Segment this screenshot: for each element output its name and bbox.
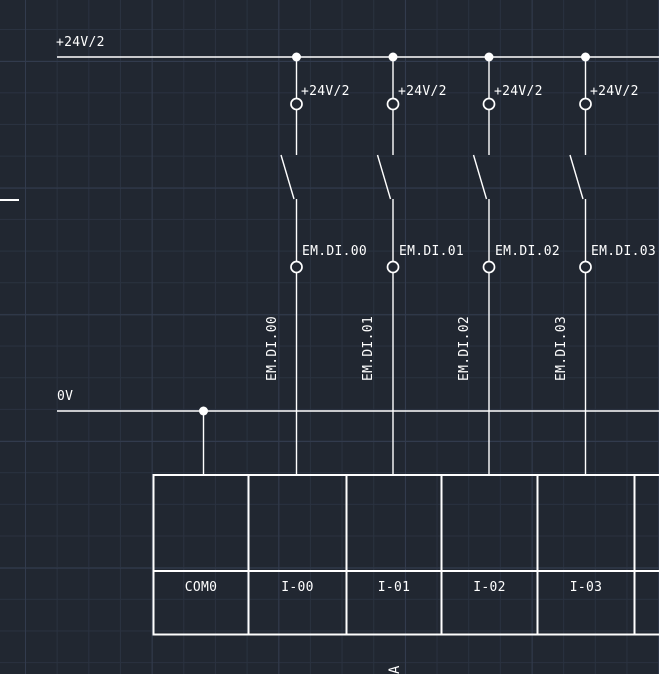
branch-2-supply-label: +24V/2 xyxy=(398,85,447,99)
branch-1-supply-label: +24V/2 xyxy=(301,85,350,99)
branch-1-wire-tag: EM.DI.00 xyxy=(266,315,280,381)
terminal-block-table xyxy=(153,474,659,636)
branch-2-junction-dot xyxy=(389,53,398,62)
branch-4-wire-tag: EM.DI.03 xyxy=(555,315,569,381)
branch-4-supply-label: +24V/2 xyxy=(590,85,639,99)
branch-4-input-label: EM.DI.03 xyxy=(591,245,656,259)
sheet-zone-marker: A xyxy=(388,659,403,674)
branch-3-input-label: EM.DI.02 xyxy=(495,245,560,259)
terminal-cell-i00: I-00 xyxy=(249,580,347,596)
branch-3-junction-dot xyxy=(485,53,494,62)
branch-1-supply-terminal-circle xyxy=(291,99,302,110)
branch-3-contact-switch-line xyxy=(474,155,487,199)
branch-4-contact-switch-line xyxy=(570,155,583,199)
ground-bus xyxy=(57,407,659,475)
ground-bus-label: 0V xyxy=(57,390,73,404)
branch-2-supply-terminal-circle xyxy=(388,99,399,110)
branch-1-junction-dot xyxy=(292,53,301,62)
cad-viewport: +24V/2 0V +24V/2 +24V/2 +24V/2 +24V/2 EM… xyxy=(0,0,659,674)
branch-1-contact-switch-line xyxy=(281,155,294,199)
branch-2-input-terminal-circle xyxy=(388,262,399,273)
branch-4-junction-dot xyxy=(581,53,590,62)
terminal-cell-i03: I-03 xyxy=(538,580,635,596)
terminal-cell-com0: COM0 xyxy=(154,580,249,596)
branch-2-wire-tag: EM.DI.01 xyxy=(362,315,376,381)
branch-3-wire-tag: EM.DI.02 xyxy=(458,315,472,381)
branch-2-contact-switch-line xyxy=(378,155,391,199)
branch-4-supply-terminal-circle xyxy=(580,99,591,110)
branch-1-input-label: EM.DI.00 xyxy=(302,245,367,259)
power-bus-label: +24V/2 xyxy=(56,36,105,50)
branch-4-input-terminal-circle xyxy=(580,262,591,273)
branch-3-input-terminal-circle xyxy=(484,262,495,273)
terminal-cell-i02: I-02 xyxy=(442,580,538,596)
branch-2-input-label: EM.DI.01 xyxy=(399,245,464,259)
branch-3-supply-terminal-circle xyxy=(484,99,495,110)
branch-3-supply-label: +24V/2 xyxy=(494,85,543,99)
branch-1-input-terminal-circle xyxy=(291,262,302,273)
terminal-cell-i01: I-01 xyxy=(347,580,442,596)
